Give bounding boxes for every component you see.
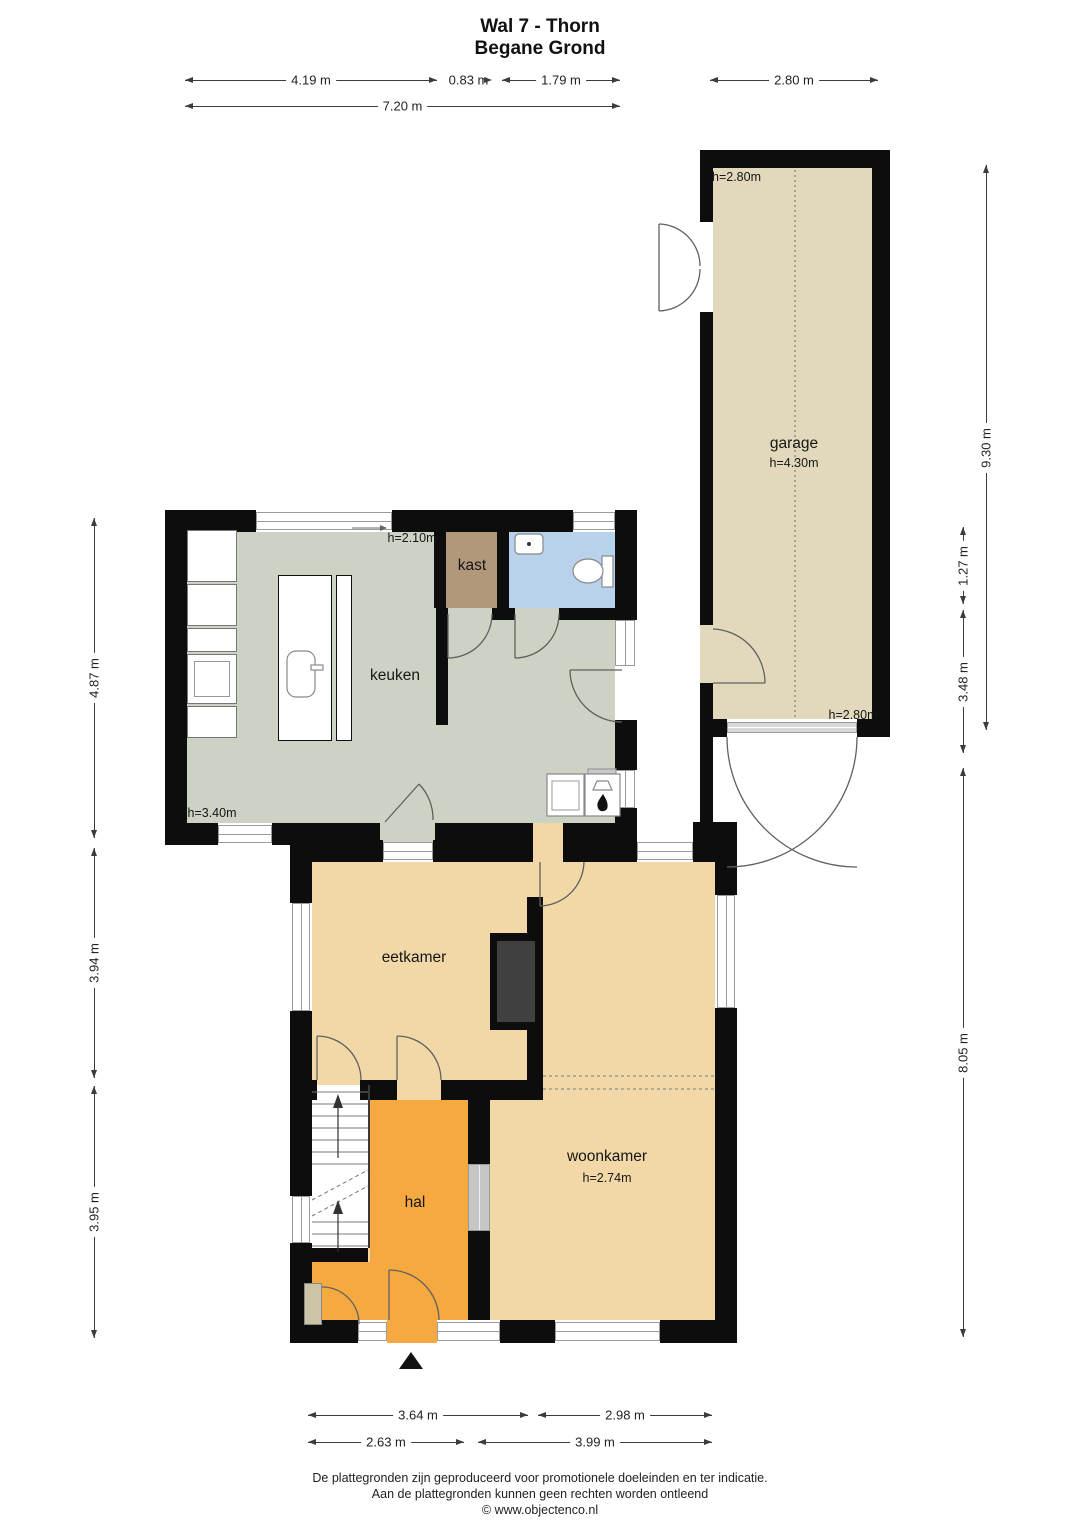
dim-label: 3.94 m [87,938,102,988]
dim-bottom-4: 3.99 m [478,1442,712,1443]
door-arc [317,1036,361,1080]
dim-label: 1.79 m [536,73,586,88]
grill-icon [588,769,616,774]
stairs-up-arrowhead [333,1094,343,1108]
dim-label: 8.05 m [956,1028,971,1078]
window-opening-arrowhead [380,525,387,531]
dim-top-1: 4.19 m [185,80,437,81]
door-arc [540,862,584,906]
dim-label: 3.95 m [87,1187,102,1237]
dim-label: 3.48 m [956,657,971,707]
toilet-bowl-icon [573,559,603,583]
stove-hood-icon [593,781,612,790]
dim-top-5: 7.20 m [185,106,620,107]
dim-left-1: 4.87 m [94,518,95,838]
garage-height-label: h=4.30m [770,456,819,470]
ceiling-dashed-line [543,1076,715,1089]
eetkamer-label: eetkamer [382,949,447,967]
door-arc [419,784,433,820]
dim-label: 3.64 m [393,1408,443,1423]
door-arc [570,670,622,722]
door-arc [659,224,700,266]
garage-label: garage [770,435,818,453]
dim-bottom-3: 2.63 m [308,1442,464,1443]
door-arc [659,269,700,311]
appliance-inner [552,781,579,810]
dim-right-4: 8.05 m [963,768,964,1337]
dim-label: 3.99 m [570,1435,620,1450]
dim-label: 2.80 m [769,73,819,88]
garage-ceiling-front-label: h=2.80m [712,170,761,184]
footer-disclaimer-2: Aan de plattegronden kunnen geen rechten… [0,1486,1080,1502]
kast-label: kast [458,557,486,575]
door-leaf [385,784,419,822]
door-arc [322,1287,359,1324]
stairs-direction [333,1094,343,1252]
footer-copyright: © www.objectenco.nl [0,1502,1080,1518]
dim-top-2: 0.83 m [445,80,492,81]
front-door-arc [389,1270,439,1320]
closet-height-label: h=2.10m [388,531,437,545]
sink-drain-icon [527,542,531,546]
dim-right-1: 9.30 m [986,165,987,730]
faucet-icon [311,665,323,670]
dim-top-3: 1.79 m [502,80,620,81]
door-arc [515,614,559,658]
stair-steps [312,1222,368,1246]
island-sink-icon [287,651,315,697]
woonkamer-height-label: h=2.74m [583,1171,632,1185]
dim-top-4: 2.80 m [710,80,878,81]
floorplan-canvas: Wal 7 - Thorn Begane Grond [0,0,1080,1527]
stairs [312,1092,368,1246]
entrance-marker-icon [399,1352,423,1369]
dim-label: 1.27 m [956,541,971,591]
keuken-height-label: h=3.40m [188,806,237,820]
dim-bottom-2: 2.98 m [538,1415,712,1416]
dim-label: 4.19 m [286,73,336,88]
dim-label: 2.98 m [600,1408,650,1423]
dim-label: 9.30 m [979,423,994,473]
stairs-up-arrowhead [333,1200,343,1214]
plan-overlay [0,0,1080,1527]
dim-left-2: 3.94 m [94,848,95,1078]
toilet-tank-icon [602,556,613,587]
door-arc [713,629,765,683]
dim-right-2: 1.27 m [963,527,964,604]
footer-disclaimer-1: De plattegronden zijn geproduceerd voor … [0,1470,1080,1486]
dim-left-3: 3.95 m [94,1086,95,1338]
dim-label: 0.83 m [444,73,494,88]
dim-label: 4.87 m [87,653,102,703]
keuken-label: keuken [370,667,420,685]
dim-label: 2.63 m [361,1435,411,1450]
dim-right-3: 3.48 m [963,610,964,753]
hal-label: hal [405,1194,426,1212]
garage-door-arc [727,737,857,867]
door-arc [448,614,492,658]
woonkamer-label: woonkamer [567,1148,647,1166]
dim-bottom-1: 3.64 m [308,1415,528,1416]
garage-ceiling-back-label: h=2.80m [829,708,878,722]
door-arc [397,1036,441,1080]
garage-door-arc [727,737,857,867]
dim-label: 7.20 m [378,99,428,114]
